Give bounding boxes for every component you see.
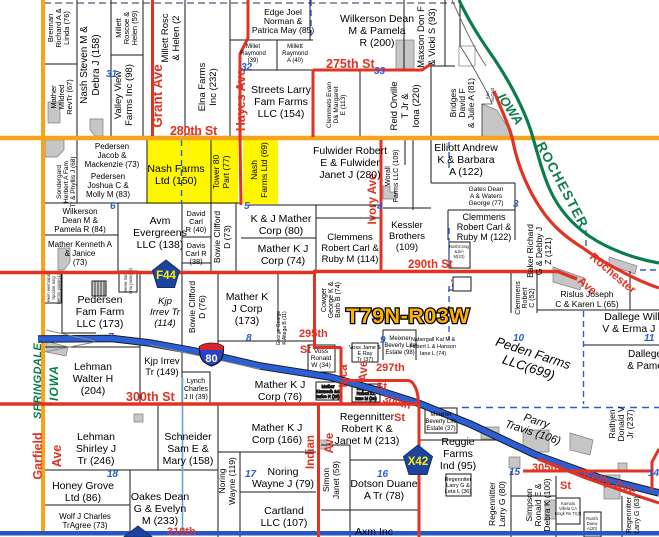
svg-text:RegennitterLarry G (63): RegennitterLarry G (63) (626, 496, 641, 534)
svg-text:RegennitterRobert K &Janet M (: RegennitterRobert K &Janet M (213) (335, 411, 400, 447)
svg-text:IOWA: IOWA (47, 365, 61, 401)
svg-text:Dallege WillV & Erma J (: Dallege WillV & Erma J ( (602, 311, 659, 335)
svg-text:18: 18 (107, 469, 119, 480)
svg-text:14: 14 (648, 468, 659, 479)
svg-text:RegennitterLarry G (80): RegennitterLarry G (80) (487, 481, 507, 527)
svg-text:ClemmensRobert Carl &Ruby M (1: ClemmensRobert Carl &Ruby M (114) (321, 232, 379, 265)
svg-text:SchneiderSam E &Mary (158): SchneiderSam E &Mary (158) (163, 431, 214, 467)
svg-text:Fulwider RobertE & FulwiderJan: Fulwider RobertE & FulwiderJanet J (280) (313, 145, 387, 181)
svg-text:Dallege& Pame: Dallege& Pame (627, 349, 659, 372)
svg-text:3: 3 (513, 199, 519, 210)
svg-text:Wolf J CharlesTrAgree (73): Wolf J CharlesTrAgree (73) (59, 512, 111, 530)
svg-text:LehmanShirley JTr (246): LehmanShirley JTr (246) (76, 431, 116, 467)
svg-text:RuskhDaewA(20): RuskhDaewA(20) (586, 516, 599, 531)
svg-text:7: 7 (108, 332, 114, 343)
svg-text:PedersenFam FarmLLC (173): PedersenFam FarmLLC (173) (76, 294, 125, 330)
svg-text:80: 80 (205, 353, 217, 365)
svg-text:T79N-R03W: T79N-R03W (346, 304, 470, 328)
svg-text:15: 15 (509, 467, 521, 478)
svg-text:RegenniterLarry G &Leta L (36): RegenniterLarry G &Leta L (36) (445, 477, 472, 495)
svg-text:280th St: 280th St (170, 124, 218, 138)
svg-text:SPRINGDALE: SPRINGDALE (32, 343, 44, 419)
svg-text:BrennanRichard A &Linda (76): BrennanRichard A &Linda (76) (46, 8, 71, 47)
svg-text:K & J MatherCorp (80): K & J MatherCorp (80) (251, 213, 312, 237)
svg-text:Rislus JosephC & Karen L (65): Rislus JosephC & Karen L (65) (555, 289, 619, 309)
svg-text:ClemmensRobert Carl &Ruby M (1: ClemmensRobert Carl &Ruby M (122) (457, 212, 512, 242)
svg-text:St: St (300, 344, 311, 356)
svg-text:RathjenDonald VJr (237): RathjenDonald VJr (237) (607, 406, 635, 441)
svg-text:St: St (376, 381, 387, 393)
svg-text:ReggieFarmsInd (95): ReggieFarmsInd (95) (440, 436, 476, 472)
svg-text:Nash FarmsLtd (150): Nash FarmsLtd (150) (147, 163, 204, 187)
svg-text:Mather K JCorp (74): Mather K JCorp (74) (258, 243, 309, 267)
svg-text:5: 5 (244, 201, 250, 212)
svg-text:310th: 310th (167, 526, 196, 537)
svg-text:Inca: Inca (338, 364, 350, 388)
svg-text:CartlandLLC (107): CartlandLLC (107) (261, 505, 308, 529)
svg-text:Hayes Ave: Hayes Ave (234, 69, 248, 131)
svg-text:8: 8 (246, 333, 252, 344)
svg-text:PedersenJoshua C &Molly M (83): PedersenJoshua C &Molly M (83) (86, 172, 130, 199)
svg-text:Ave: Ave (50, 445, 64, 468)
svg-text:305th: 305th (532, 462, 561, 474)
svg-text:290th St: 290th St (408, 259, 453, 271)
svg-text:Nash Steven M &Debra J (158): Nash Steven M &Debra J (158) (79, 26, 102, 104)
svg-text:4: 4 (376, 202, 383, 213)
svg-text:Maxson Don F& Vicki S (93): Maxson Don F& Vicki S (93) (416, 6, 438, 68)
svg-text:Ave: Ave (358, 361, 370, 382)
svg-text:Mather K JCorp (166): Mather K JCorp (166) (252, 422, 303, 446)
svg-text:Mather K JCorp (76): Mather K JCorp (76) (255, 379, 306, 403)
svg-text:Streets LarryFam FarmsLLC (154: Streets LarryFam FarmsLLC (154) (251, 84, 312, 120)
svg-text:St: St (394, 412, 405, 424)
svg-text:Tower 80Part (77): Tower 80Part (77) (211, 154, 231, 189)
svg-text:Garfield: Garfield (31, 432, 45, 479)
svg-text:LynchCharlesJ II (39): LynchCharlesJ II (39) (184, 378, 209, 401)
svg-text:St: St (560, 480, 571, 492)
svg-text:Elna FarmsInc (232): Elna FarmsInc (232) (197, 62, 219, 111)
svg-text:297th: 297th (376, 362, 405, 374)
svg-text:Indian: Indian (305, 435, 317, 469)
svg-text:George GeorgeK Altega B (11): George GeorgeK Altega B (11) (276, 310, 288, 345)
svg-text:Grant Ave: Grant Ave (150, 64, 165, 128)
svg-text:33: 33 (374, 66, 386, 77)
svg-text:Valley ViewFarms Inc (98): Valley ViewFarms Inc (98) (113, 64, 135, 126)
svg-text:295th: 295th (299, 328, 328, 340)
svg-text:300th St: 300th St (126, 390, 175, 404)
svg-text:Millett Rosc& Helen (2: Millett Rosc& Helen (2 (160, 13, 182, 62)
svg-text:X42: X42 (408, 456, 428, 468)
svg-text:Axm Inc: Axm Inc (355, 526, 393, 537)
svg-text:Kjp IrrevTr (149): Kjp IrrevTr (149) (144, 356, 180, 378)
svg-text:6: 6 (110, 201, 116, 212)
svg-text:Gates DeanA & WatersGeorge (77: Gates DeanA & WatersGeorge (77) (468, 186, 503, 207)
svg-text:F44: F44 (156, 270, 176, 282)
svg-text:Ivory Ave: Ivory Ave (367, 174, 379, 225)
svg-text:275th St: 275th St (326, 57, 375, 71)
